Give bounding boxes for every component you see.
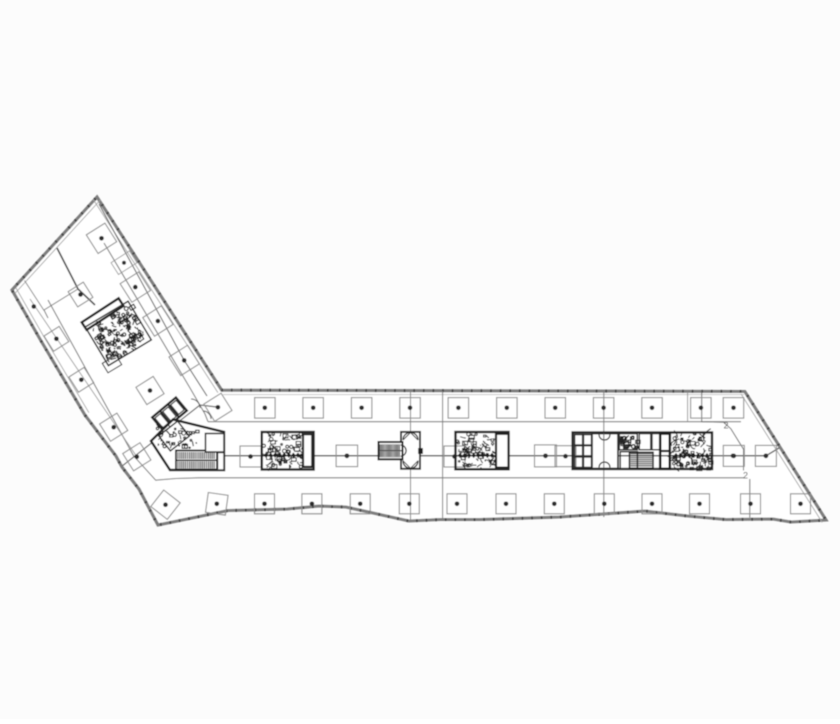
svg-text:2: 2 — [724, 421, 729, 431]
svg-text:2: 2 — [743, 471, 748, 481]
